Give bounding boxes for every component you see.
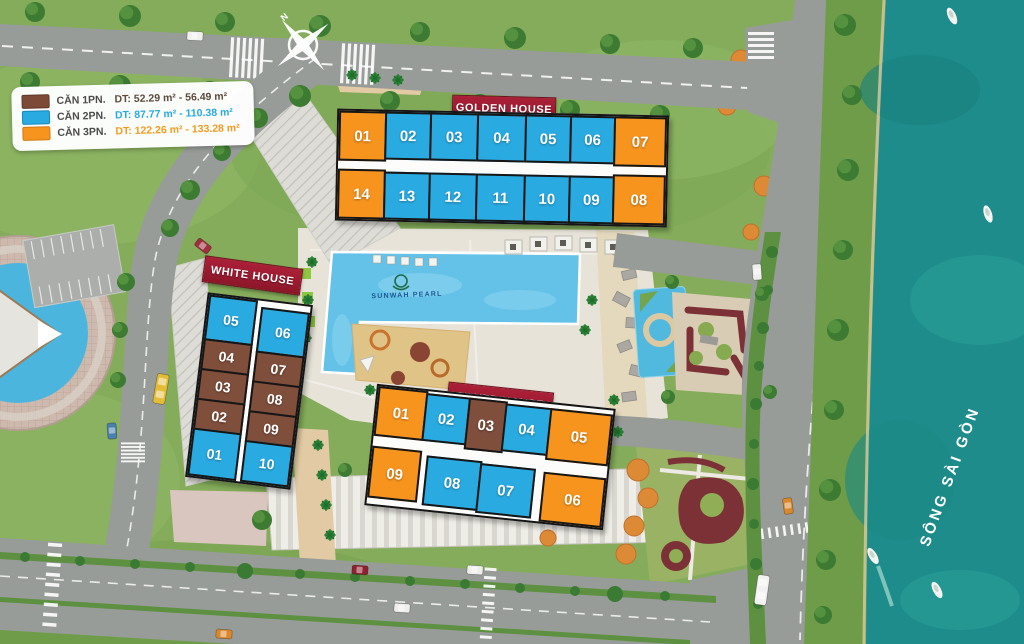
legend-area-2pn: DT: 87.77 m² - 110.38 m² — [115, 106, 233, 121]
golden-unit-12[interactable]: 12 — [428, 172, 478, 221]
silver-unit-09[interactable]: 09 — [367, 446, 422, 503]
golden-unit-07[interactable]: 07 — [613, 116, 667, 167]
golden-unit-13[interactable]: 13 — [383, 172, 431, 221]
golden-unit-09[interactable]: 09 — [568, 175, 615, 224]
legend-swatch-1pn — [21, 94, 49, 109]
white-unit-01[interactable]: 01 — [187, 427, 241, 481]
silver-unit-07[interactable]: 07 — [475, 463, 536, 519]
golden-unit-08[interactable]: 08 — [612, 174, 666, 225]
silver-unit-06[interactable]: 06 — [539, 472, 607, 528]
golden-unit-11[interactable]: 11 — [475, 173, 526, 222]
silver-unit-02[interactable]: 02 — [421, 393, 471, 445]
golden-unit-05[interactable]: 05 — [524, 114, 572, 163]
silver-unit-04[interactable]: 04 — [501, 403, 553, 456]
legend-swatch-3pn — [22, 126, 50, 141]
site-plan: CĂN 1PN. DT: 52.29 m² - 56.49 m² CĂN 2PN… — [0, 0, 1024, 644]
legend-swatch-2pn — [22, 110, 50, 125]
golden-unit-01[interactable]: 01 — [338, 111, 387, 162]
golden-unit-03[interactable]: 03 — [429, 112, 479, 161]
white-house-building: 05 04 03 02 01 06 07 08 09 10 — [185, 292, 313, 490]
golden-unit-04[interactable]: 04 — [476, 113, 527, 162]
white-unit-10[interactable]: 10 — [240, 440, 294, 488]
saigon-river — [845, 0, 1024, 644]
golden-unit-10[interactable]: 10 — [523, 174, 571, 223]
silver-unit-01[interactable]: 01 — [374, 386, 429, 441]
legend-label-1pn: CĂN 1PN. — [56, 94, 105, 107]
legend-area-3pn: DT: 122.26 m² - 133.28 m² — [115, 122, 240, 137]
silver-unit-08[interactable]: 08 — [422, 455, 483, 511]
silver-unit-05[interactable]: 05 — [545, 408, 613, 466]
legend-panel: CĂN 1PN. DT: 52.29 m² - 56.49 m² CĂN 2PN… — [11, 81, 255, 151]
legend-label-2pn: CĂN 2PN. — [57, 110, 106, 123]
golden-house-building: 01 02 03 04 05 06 07 14 13 12 11 10 09 0… — [335, 109, 669, 228]
golden-unit-02[interactable]: 02 — [384, 112, 432, 161]
golden-unit-14[interactable]: 14 — [337, 169, 386, 220]
silver-house-building: 01 02 03 04 05 09 08 07 06 — [364, 384, 615, 530]
legend-area-1pn: DT: 52.29 m² - 56.49 m² — [114, 91, 227, 106]
golden-unit-06[interactable]: 06 — [569, 115, 616, 164]
legend-label-3pn: CĂN 3PN. — [57, 126, 106, 139]
playground — [352, 324, 470, 390]
